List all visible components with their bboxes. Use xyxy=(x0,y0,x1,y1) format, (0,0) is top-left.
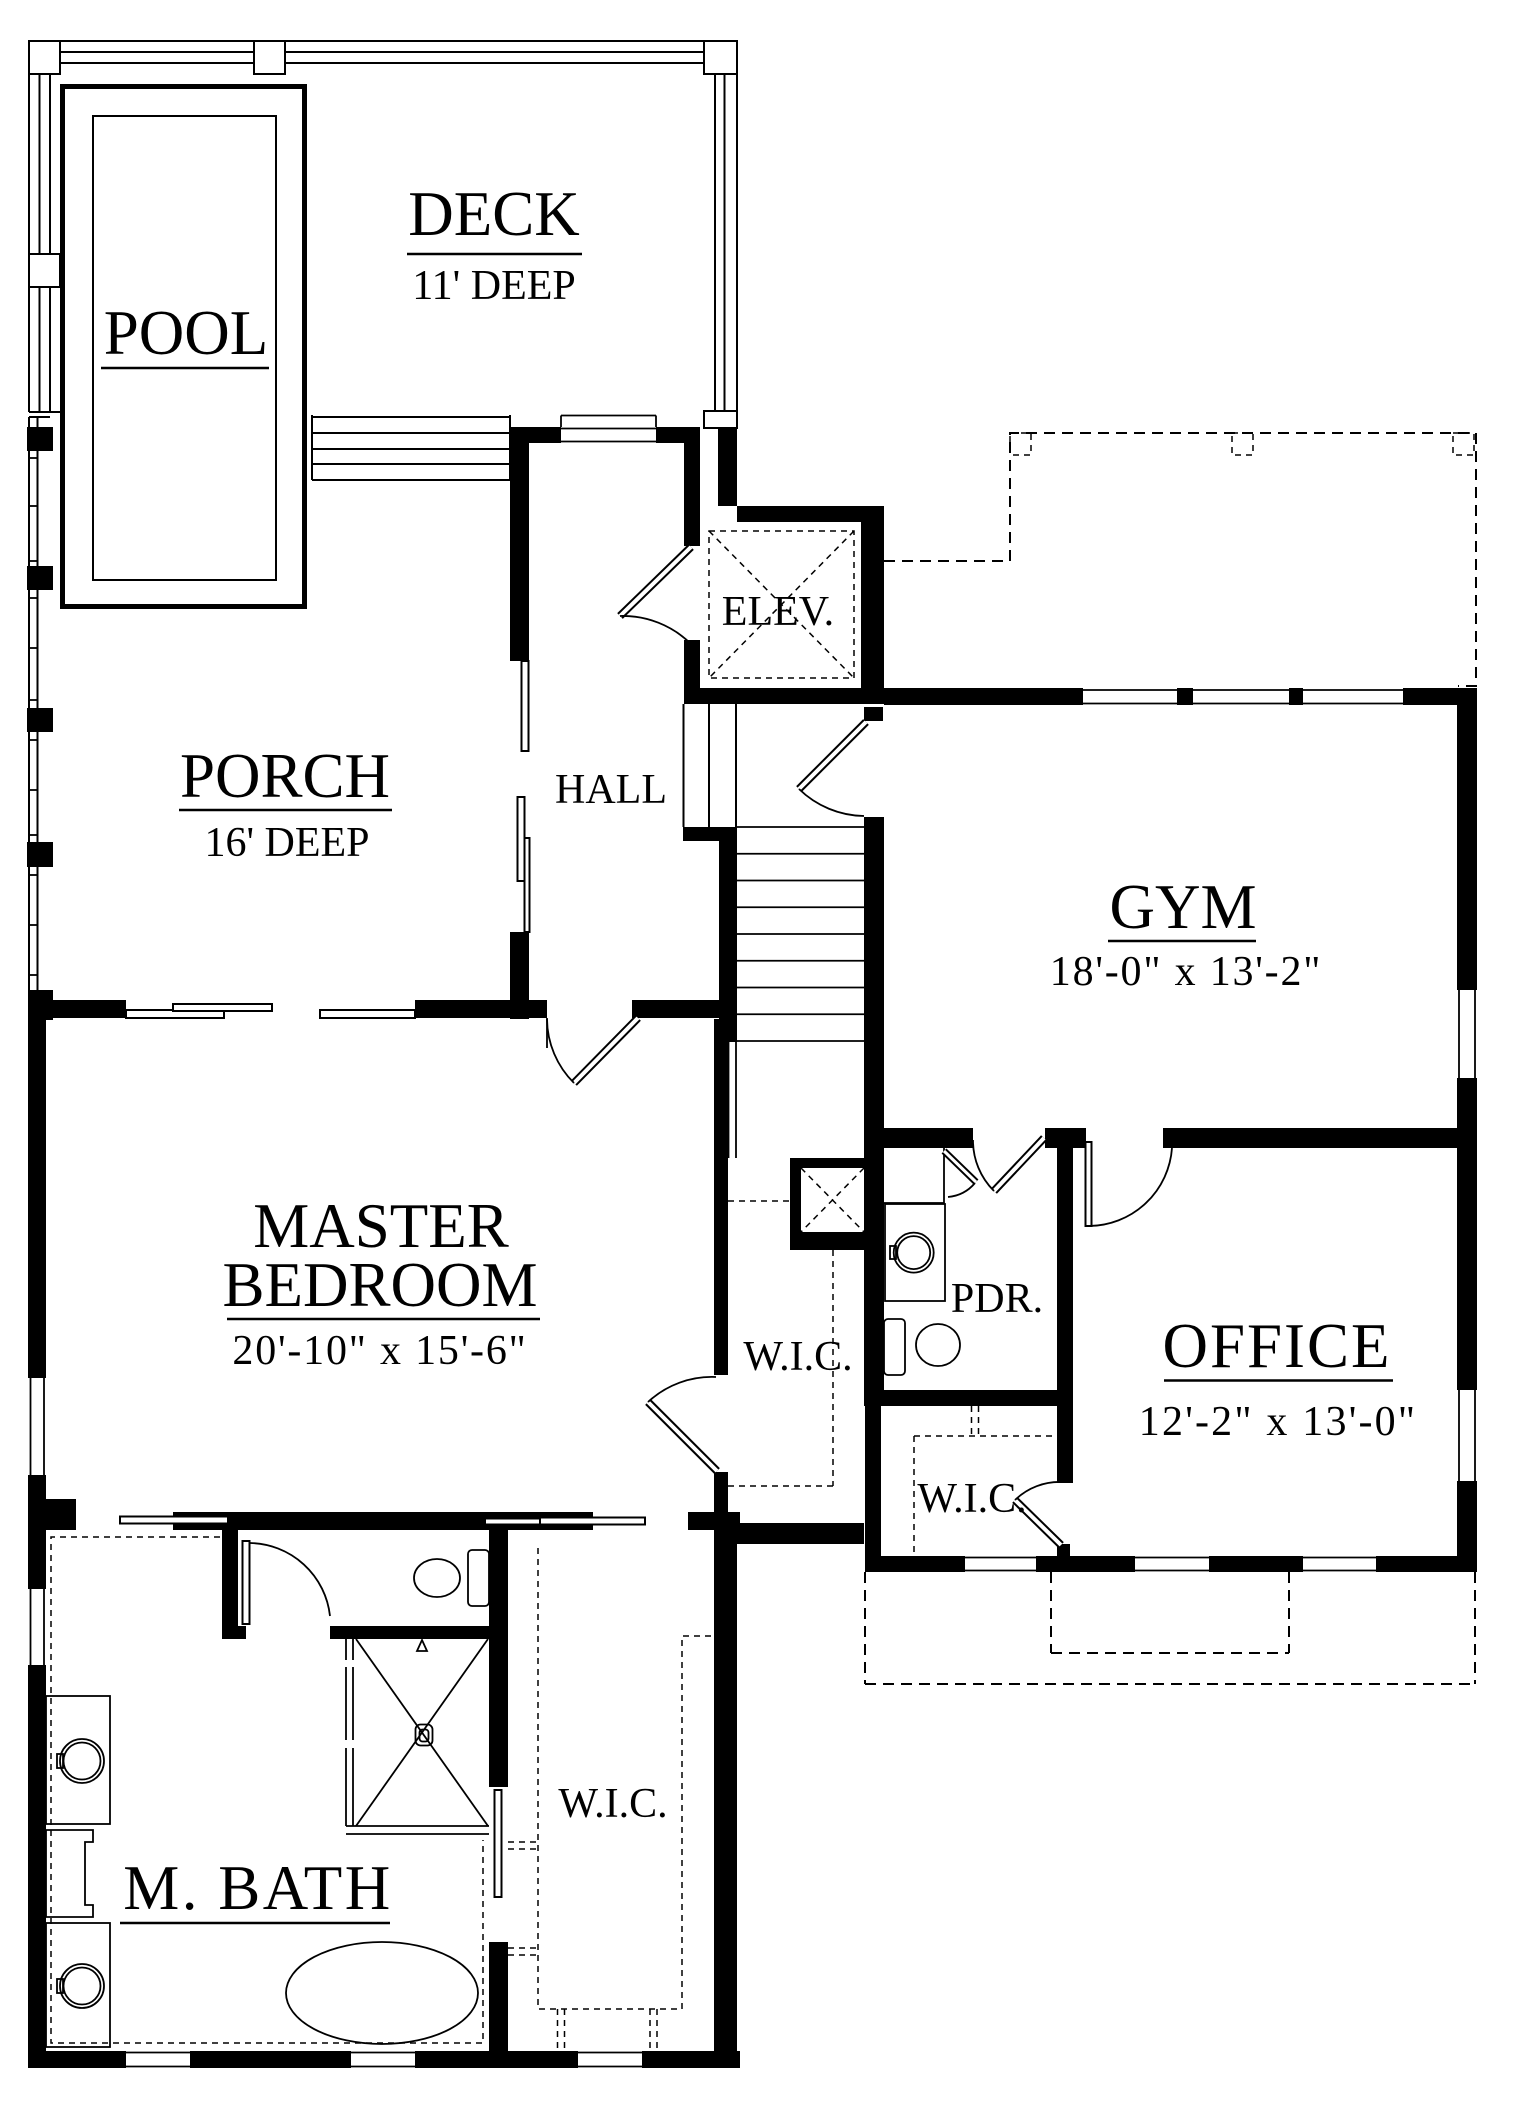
svg-text:BEDROOM: BEDROOM xyxy=(222,1250,537,1320)
svg-text:POOL: POOL xyxy=(104,298,269,368)
svg-text:18'-0" x 13'-2": 18'-0" x 13'-2" xyxy=(1050,949,1322,995)
svg-text:HALL: HALL xyxy=(555,767,667,813)
svg-text:11' DEEP: 11' DEEP xyxy=(412,263,576,309)
svg-text:PORCH: PORCH xyxy=(180,741,390,811)
svg-text:M. BATH: M. BATH xyxy=(123,1853,393,1923)
svg-text:12'-2" x 13'-0": 12'-2" x 13'-0" xyxy=(1139,1399,1417,1445)
svg-text:ELEV.: ELEV. xyxy=(722,589,834,635)
svg-text:PDR.: PDR. xyxy=(951,1276,1043,1322)
svg-text:16' DEEP: 16' DEEP xyxy=(204,820,369,866)
svg-text:DECK: DECK xyxy=(408,179,580,249)
svg-text:20'-10" x 15'-6": 20'-10" x 15'-6" xyxy=(232,1328,527,1374)
svg-text:W.I.C.: W.I.C. xyxy=(558,1781,667,1827)
svg-text:W.I.C.: W.I.C. xyxy=(917,1476,1026,1522)
svg-text:W.I.C.: W.I.C. xyxy=(743,1334,852,1380)
svg-text:GYM: GYM xyxy=(1109,872,1256,942)
svg-text:OFFICE: OFFICE xyxy=(1162,1311,1391,1381)
